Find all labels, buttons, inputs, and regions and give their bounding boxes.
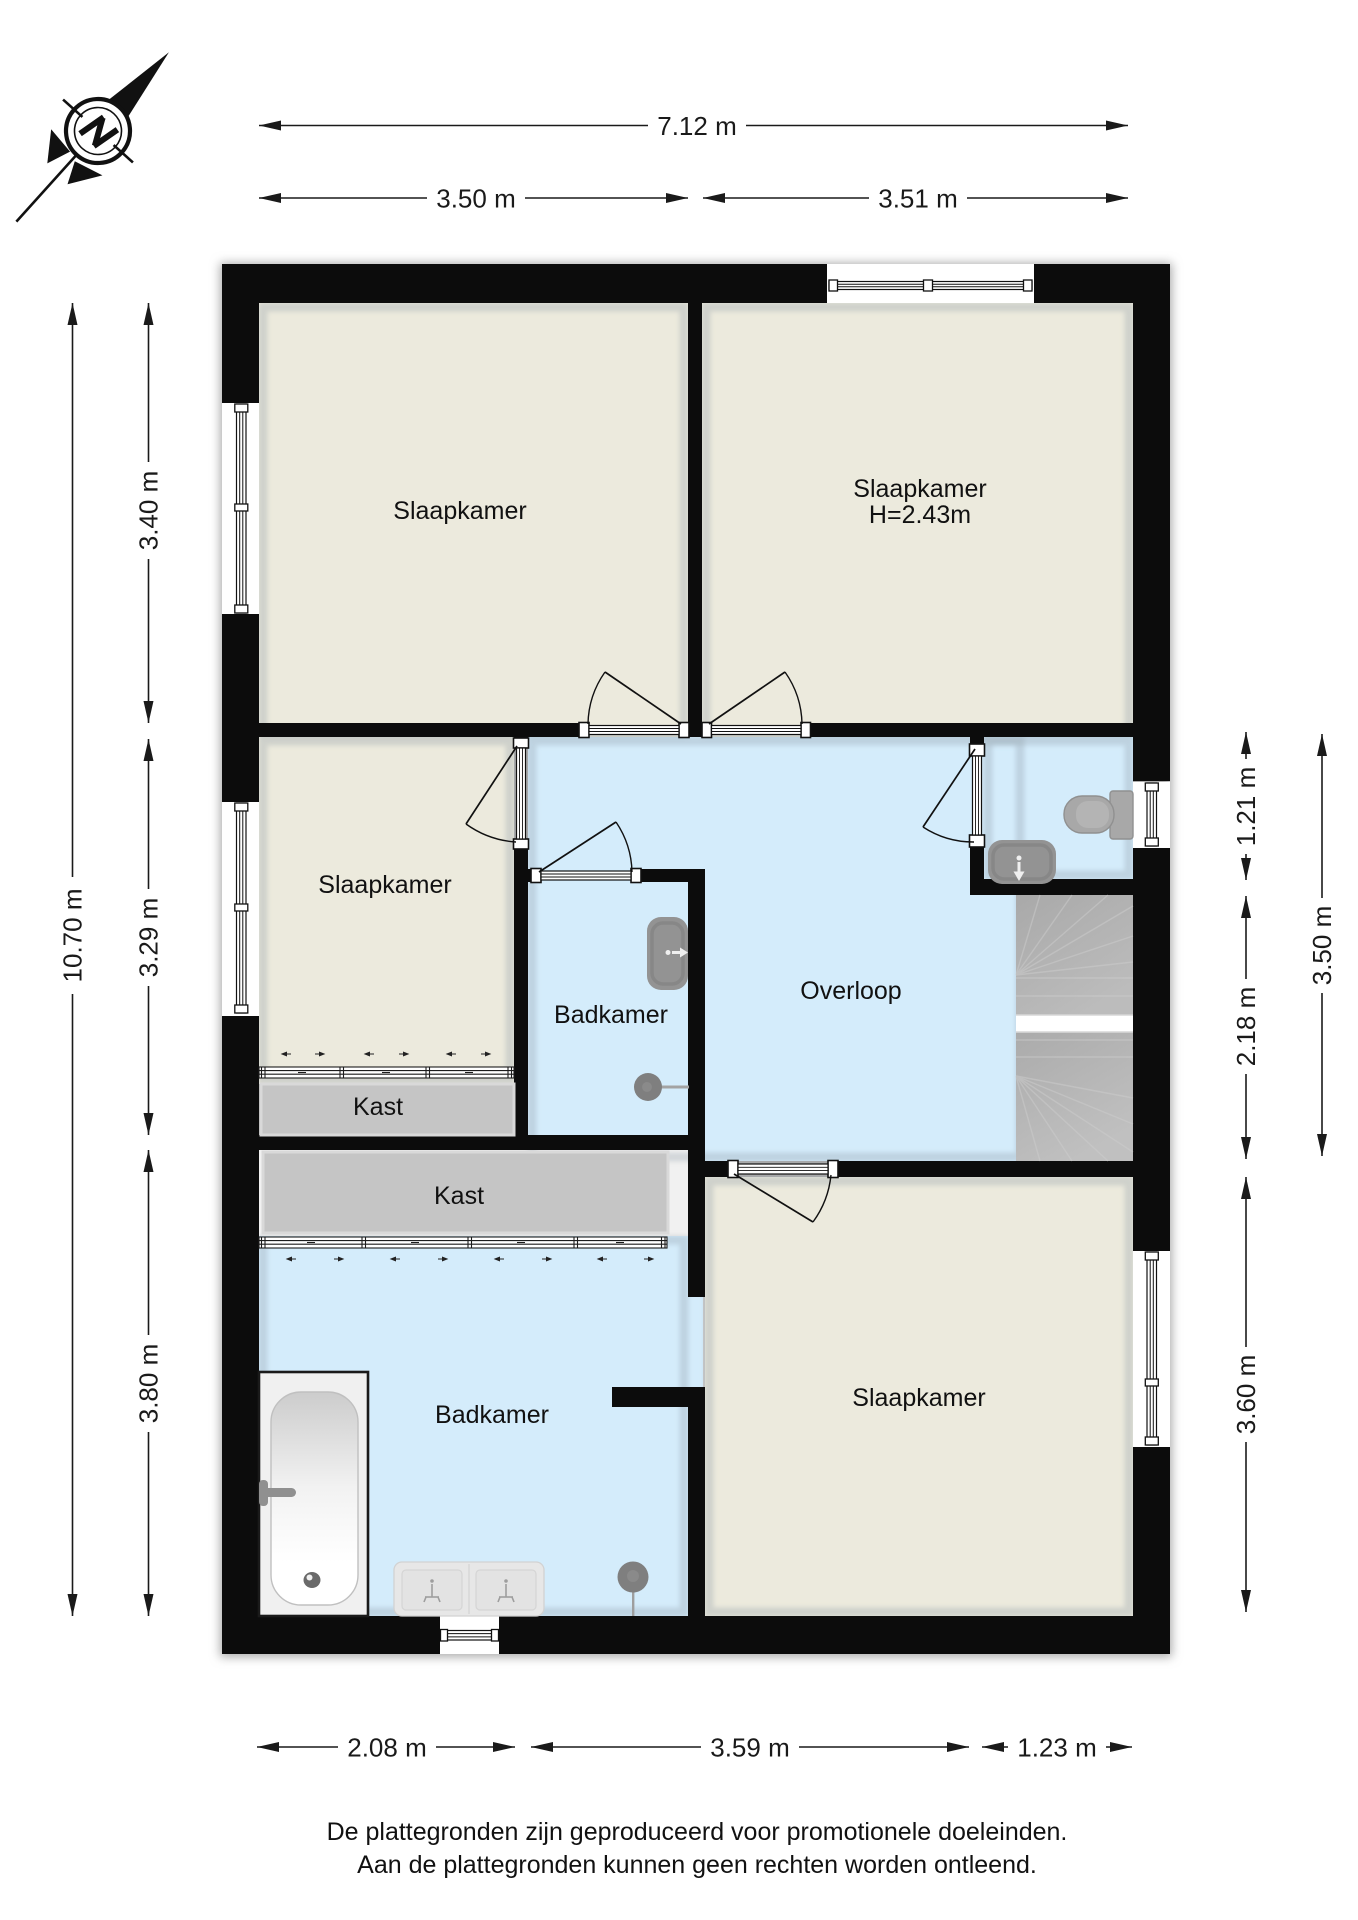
svg-text:3.51 m: 3.51 m — [878, 184, 958, 214]
svg-text:3.50 m: 3.50 m — [1307, 906, 1337, 986]
svg-text:10.70 m: 10.70 m — [58, 889, 88, 983]
svg-text:Aan de plattegronden kunnen ge: Aan de plattegronden kunnen geen rechten… — [357, 1851, 1037, 1879]
svg-text:1.23 m: 1.23 m — [1017, 1733, 1097, 1763]
svg-text:3.80 m: 3.80 m — [134, 1344, 164, 1424]
svg-text:3.50 m: 3.50 m — [436, 184, 516, 214]
svg-text:Slaapkamer: Slaapkamer — [853, 475, 986, 503]
svg-text:Overloop: Overloop — [800, 977, 901, 1005]
svg-text:2.18 m: 2.18 m — [1231, 987, 1261, 1067]
svg-text:3.40 m: 3.40 m — [134, 471, 164, 551]
svg-text:Badkamer: Badkamer — [554, 1001, 668, 1029]
svg-text:Slaapkamer: Slaapkamer — [318, 871, 451, 899]
svg-text:Slaapkamer: Slaapkamer — [852, 1384, 985, 1412]
svg-text:3.29 m: 3.29 m — [134, 898, 164, 978]
svg-text:3.59 m: 3.59 m — [710, 1733, 790, 1763]
svg-text:De plattegronden zijn geproduc: De plattegronden zijn geproduceerd voor … — [327, 1818, 1068, 1846]
svg-text:H=2.43m: H=2.43m — [869, 501, 971, 529]
svg-text:1.21 m: 1.21 m — [1231, 767, 1261, 847]
svg-text:Badkamer: Badkamer — [435, 1401, 549, 1429]
svg-text:3.60 m: 3.60 m — [1231, 1355, 1261, 1435]
svg-text:Kast: Kast — [434, 1182, 484, 1210]
svg-text:7.12 m: 7.12 m — [657, 111, 737, 141]
svg-text:Slaapkamer: Slaapkamer — [393, 497, 526, 525]
svg-text:2.08 m: 2.08 m — [347, 1733, 427, 1763]
svg-text:Kast: Kast — [353, 1093, 403, 1121]
